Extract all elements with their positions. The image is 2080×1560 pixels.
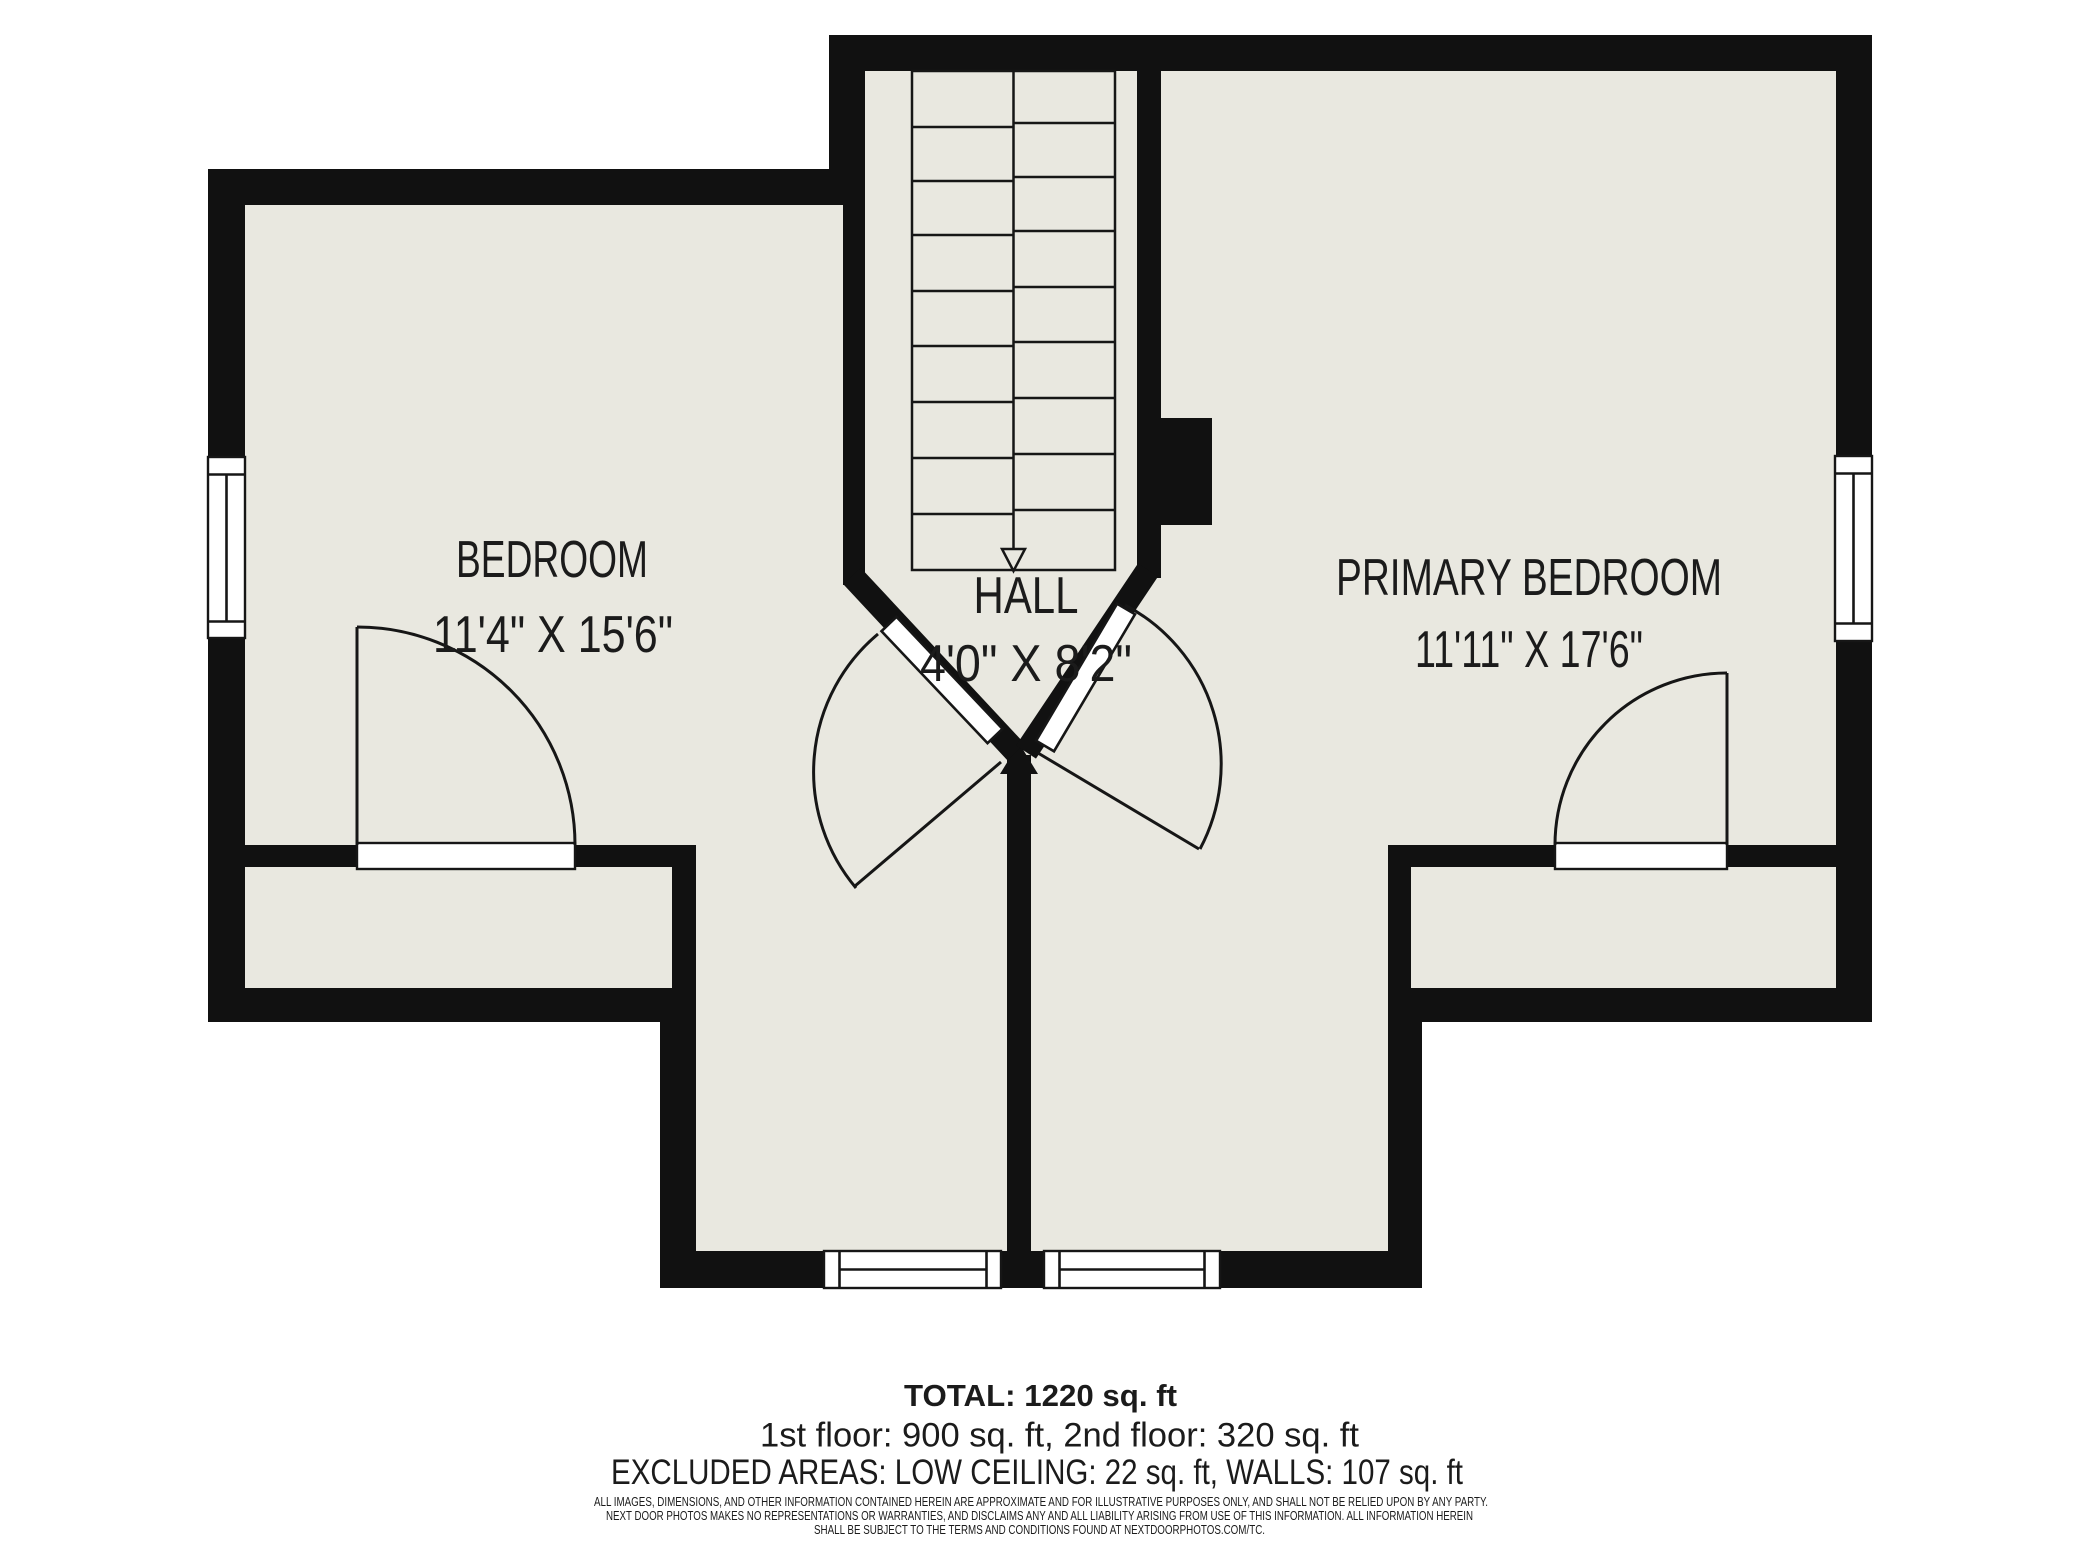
svg-text:4'0" X 8'2": 4'0" X 8'2" — [920, 635, 1132, 693]
svg-text:TOTAL: 1220 sq. ft: TOTAL: 1220 sq. ft — [904, 1378, 1177, 1413]
svg-text:ALL IMAGES, DIMENSIONS, AND OT: ALL IMAGES, DIMENSIONS, AND OTHER INFORM… — [594, 1494, 1488, 1509]
svg-text:SHALL BE SUBJECT TO THE TERMS: SHALL BE SUBJECT TO THE TERMS AND CONDIT… — [814, 1522, 1265, 1537]
svg-text:11'4" X 15'6": 11'4" X 15'6" — [433, 606, 673, 664]
svg-text:1st floor: 900 sq. ft, 2nd flo: 1st floor: 900 sq. ft, 2nd floor: 320 sq… — [760, 1417, 1360, 1455]
svg-text:PRIMARY BEDROOM: PRIMARY BEDROOM — [1336, 549, 1722, 607]
svg-text:NEXT DOOR PHOTOS MAKES NO REPR: NEXT DOOR PHOTOS MAKES NO REPRESENTATION… — [606, 1508, 1473, 1523]
svg-text:HALL: HALL — [974, 567, 1079, 625]
svg-text:EXCLUDED AREAS: LOW CEILING: 2: EXCLUDED AREAS: LOW CEILING: 22 sq. ft, … — [611, 1453, 1463, 1492]
svg-text:BEDROOM: BEDROOM — [456, 531, 648, 589]
svg-text:11'11" X 17'6": 11'11" X 17'6" — [1415, 621, 1643, 679]
